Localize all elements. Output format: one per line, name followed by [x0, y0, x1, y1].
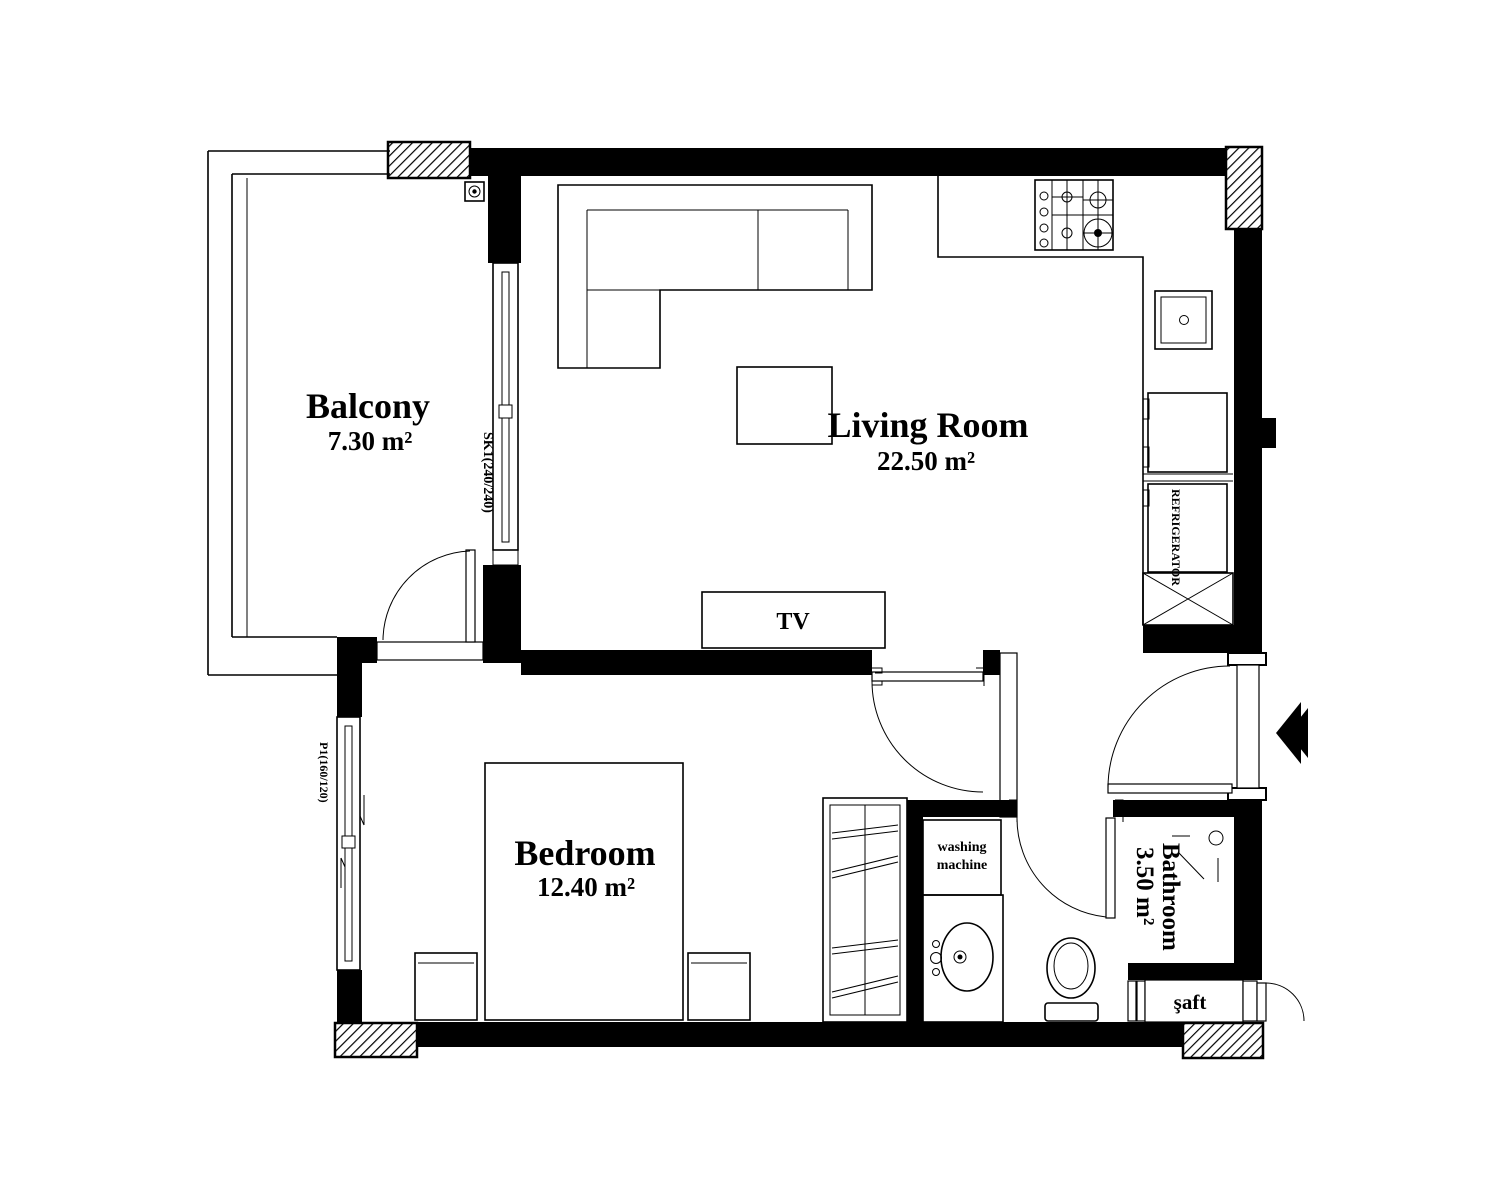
shaft-frame-right	[1243, 981, 1257, 1021]
living-room-area: 22.50 m²	[877, 446, 975, 476]
bedroom-room: P1(160/120) Bedroom 12.40 m²	[317, 668, 984, 1022]
entrance	[1108, 653, 1308, 800]
refrigerator-label: REFRIGERATOR	[1169, 489, 1183, 586]
wall-bump-right	[1262, 418, 1276, 448]
shaft: şaft	[1128, 980, 1304, 1022]
balcony-door-arc	[383, 551, 470, 640]
bathroom-label-group: Bathroom 3.50 m²	[1131, 843, 1184, 957]
balcony-door-code: SK1(240/240)	[480, 432, 495, 513]
wall-bedroom-top-right	[983, 650, 1000, 675]
balcony-room: Balcony 7.30 m² SK1(240/240)	[208, 151, 518, 675]
stove	[1035, 180, 1113, 250]
balcony-door	[377, 550, 483, 660]
balcony-label: Balcony	[306, 386, 430, 426]
washing-machine-label-1: washing	[937, 840, 986, 855]
bedroom-window	[337, 717, 364, 970]
kitchen: REFRIGERATOR	[938, 176, 1233, 625]
wall-bathroom-top-left	[907, 800, 1017, 817]
wall-right-lower	[1234, 800, 1262, 963]
floor-plan-drawing: Balcony 7.30 m² SK1(240/240) TV Living R…	[0, 0, 1500, 1196]
wall-right-upper	[1234, 228, 1262, 627]
tv-unit: TV	[702, 592, 885, 648]
balcony-door-leaf	[466, 550, 475, 642]
living-room: TV Living Room 22.50 m²	[558, 185, 1029, 648]
entrance-door-arc	[1108, 666, 1230, 788]
bathroom-door-leaf	[1106, 818, 1115, 918]
kitchen-sink	[1155, 291, 1212, 349]
entrance-opening	[1237, 665, 1259, 788]
balcony-door-threshold	[377, 642, 483, 660]
wardrobe	[823, 798, 907, 1022]
washing-machine: washing machine	[923, 820, 1001, 895]
wall-balcony-column-lower	[483, 565, 521, 663]
bedroom-label: Bedroom	[514, 833, 655, 873]
wall-bottom	[360, 1022, 1263, 1047]
nightstand-left	[415, 953, 477, 1020]
wall-bathroom-left	[907, 800, 923, 1022]
shaft-door-arc	[1266, 983, 1304, 1021]
wall-hallway-top	[1143, 625, 1262, 653]
oven	[1143, 393, 1227, 472]
bedroom-window-code: P1(160/120)	[317, 742, 331, 803]
hatch-top-left	[388, 142, 470, 178]
washing-machine-label-2: machine	[937, 858, 988, 873]
shaft-door-leaf	[1257, 983, 1266, 1021]
wall-bedroom-left-upper	[337, 637, 362, 717]
shaft-label: şaft	[1174, 990, 1207, 1014]
wall-bedroom-left-lower	[337, 970, 362, 1022]
refrigerator: REFRIGERATOR	[1143, 484, 1227, 586]
bedroom-door-leaf	[872, 672, 983, 681]
toilet	[1045, 938, 1098, 1021]
entrance-frame-top	[1228, 653, 1266, 665]
wall-bathroom-top-right	[1113, 800, 1234, 817]
entrance-frame-bottom	[1228, 788, 1266, 800]
sofa	[558, 185, 872, 368]
balcony-area: 7.30 m²	[328, 426, 413, 456]
wall-top	[466, 148, 1226, 176]
bathroom-door	[1009, 800, 1123, 918]
bedroom-door	[872, 668, 984, 792]
bathroom-area: 3.50 m²	[1131, 847, 1158, 925]
entrance-door-leaf	[1108, 784, 1232, 793]
wall-balcony-column-upper	[488, 170, 521, 263]
wall-bathroom-bottom	[1128, 963, 1262, 980]
bathroom-door-arc	[1017, 818, 1106, 917]
kitchen-cabinet-x	[1143, 573, 1233, 625]
coffee-table	[737, 367, 832, 444]
shaft-frame-left-a	[1128, 981, 1136, 1021]
bathroom-vanity	[923, 895, 1003, 1022]
living-room-label: Living Room	[827, 405, 1028, 445]
nightstand-right	[688, 953, 750, 1020]
bathroom-label: Bathroom	[1157, 843, 1184, 951]
hatch-bottom-left	[335, 1023, 417, 1057]
balcony-window	[493, 263, 518, 565]
wall-corridor-column	[1000, 653, 1017, 817]
entrance-arrow-icon	[1276, 702, 1308, 764]
wall-bedroom-top	[521, 650, 872, 675]
bedroom-door-arc	[872, 681, 983, 792]
hatch-top-right	[1226, 147, 1262, 229]
floor-plan-page: Balcony 7.30 m² SK1(240/240) TV Living R…	[0, 0, 1500, 1196]
wall-balcony-door-jamb	[362, 637, 377, 663]
counter-divider	[1143, 474, 1233, 481]
hatch-bottom-right	[1183, 1023, 1263, 1058]
tv-label: TV	[776, 609, 810, 635]
shaft-frame-left-b	[1137, 981, 1145, 1021]
balcony-drain-icon	[465, 182, 484, 201]
bedroom-area: 12.40 m²	[537, 872, 635, 902]
